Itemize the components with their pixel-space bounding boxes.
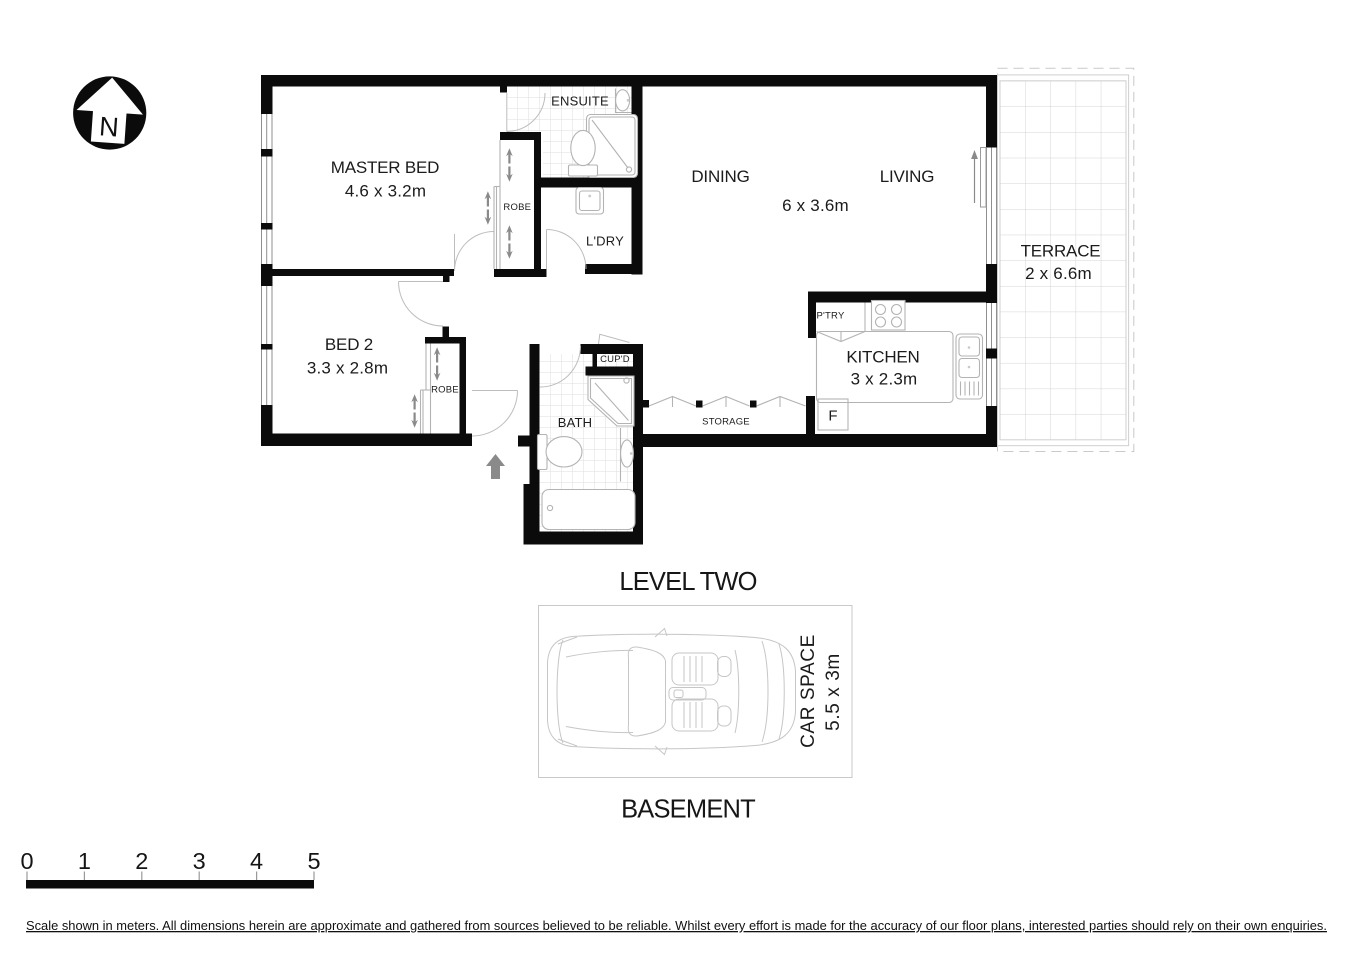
svg-text:F: F [828,408,837,425]
svg-text:3 x 2.3m: 3 x 2.3m [851,370,918,389]
svg-text:BATH: BATH [558,415,593,430]
svg-text:ENSUITE: ENSUITE [551,94,609,109]
svg-text:5.5 x 3m: 5.5 x 3m [823,653,844,731]
svg-text:0: 0 [20,848,33,874]
svg-text:STORAGE: STORAGE [702,417,750,428]
svg-text:2 x 6.6m: 2 x 6.6m [1025,264,1092,283]
svg-text:ROBE: ROBE [503,202,531,213]
svg-text:MASTER BED: MASTER BED [331,158,440,177]
svg-text:3.3 x 2.8m: 3.3 x 2.8m [307,359,388,378]
svg-text:5: 5 [307,848,320,874]
svg-text:L'DRY: L'DRY [586,234,624,249]
svg-text:4: 4 [250,848,263,874]
svg-text:ROBE: ROBE [431,385,459,396]
svg-text:CUP'D: CUP'D [600,354,630,365]
svg-text:6 x 3.6m: 6 x 3.6m [782,196,849,215]
svg-text:1: 1 [78,848,91,874]
svg-text:LEVEL TWO: LEVEL TWO [619,568,756,596]
svg-text:3: 3 [193,848,206,874]
svg-text:N: N [98,111,120,142]
svg-text:P'TRY: P'TRY [817,311,845,322]
svg-text:CAR SPACE: CAR SPACE [798,634,819,748]
svg-text:Scale shown in meters. All dim: Scale shown in meters. All dimensions he… [26,918,1327,933]
svg-text:BASEMENT: BASEMENT [621,796,755,824]
svg-text:DINING: DINING [691,167,749,186]
svg-text:4.6 x 3.2m: 4.6 x 3.2m [345,182,426,201]
svg-text:LIVING: LIVING [880,167,935,186]
svg-text:KITCHEN: KITCHEN [846,348,919,367]
svg-text:TERRACE: TERRACE [1021,242,1101,261]
svg-text:BED 2: BED 2 [325,335,373,354]
svg-text:2: 2 [135,848,148,874]
